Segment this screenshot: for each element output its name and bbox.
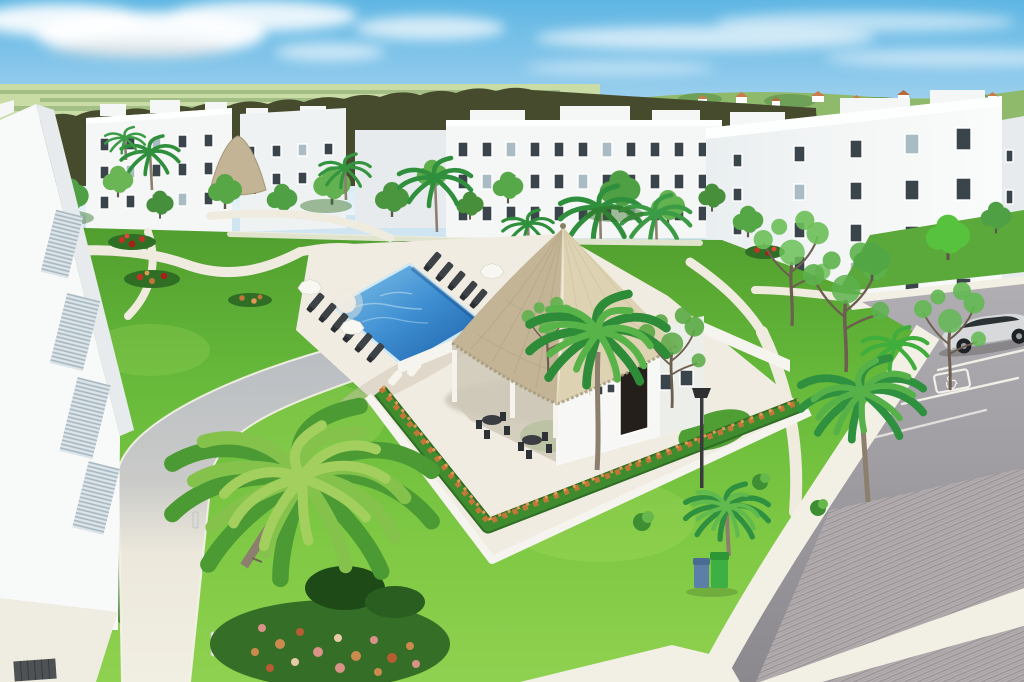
bollard-light: [193, 512, 198, 528]
architectural-rendering: [0, 0, 1024, 682]
flower-bed: [228, 293, 272, 307]
floor-grate: [13, 659, 56, 682]
rendering-canvas: [0, 0, 1024, 682]
trash-bin-blue: [693, 558, 710, 588]
flower-bed: [124, 270, 180, 288]
trash-bin-green: [710, 552, 729, 588]
pool-steps: [336, 293, 356, 313]
